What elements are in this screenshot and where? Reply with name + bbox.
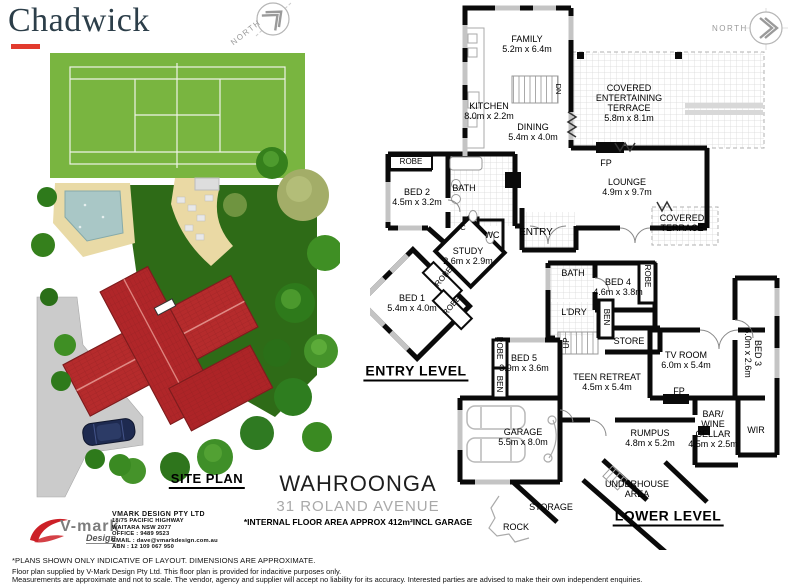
site-plan-title: SITE PLAN (169, 471, 245, 489)
room-label-rock: ROCK (503, 522, 529, 532)
room-label-robe-bed5: ROBE (494, 337, 504, 360)
disclaimer-line-1: *PLANS SHOWN ONLY INDICATIVE OF LAYOUT. … (12, 556, 315, 565)
room-label-storage: STORAGE (529, 502, 573, 512)
company-email: EMAIL : dave@vmarkdesign.com.au (112, 538, 218, 545)
floorplan-sheet: NORTH NORTH (0, 0, 800, 586)
room-label-rumpus: RUMPUS4.8m x 5.2m (625, 428, 675, 448)
room-label-bath: BATH (452, 183, 475, 193)
company-address-1: 18/75 PACIFIC HIGHWAY (112, 518, 218, 525)
room-label-wir: WIR (747, 425, 765, 435)
company-phone: OFFICE : 9489 9523 (112, 531, 218, 538)
title-accent-bar (11, 44, 40, 49)
site-plan-art (25, 45, 340, 510)
room-label-robe-bed2: ROBE (400, 157, 423, 167)
stairs-down (512, 76, 558, 103)
room-label-wc: WC (485, 230, 500, 240)
lower-level-title: LOWER LEVEL (613, 508, 724, 527)
street-address: 31 ROLAND AVENUE (244, 498, 472, 515)
room-label-bar-wine-cellar: BAR/WINE CELLAR4.5m x 2.5m (688, 409, 738, 449)
room-label-laundry: L'DRY (561, 307, 587, 317)
room-label-underhouse-area: UNDERHOUSEAREA (605, 479, 669, 499)
room-label-entry: ENTRY (519, 228, 553, 238)
room-label-study: STUDY2.6m x 2.9m (443, 246, 493, 266)
room-label-bed1: BED 15.4m x 4.0m (387, 293, 437, 313)
room-label-ben-laundry: BEN (601, 309, 611, 325)
stairs-up-label: UP (562, 337, 572, 348)
fireplace-label: FP (600, 158, 612, 168)
room-label-bed2: BED 24.5m x 3.2m (392, 187, 442, 207)
page-title: Chadwick (8, 2, 150, 40)
company-name: VMARK DESIGN PTY LTD (112, 511, 218, 518)
fireplace-label-lower: FP (673, 386, 685, 396)
room-label-bath-lower: BATH (561, 268, 584, 278)
room-label-lounge: LOUNGE4.9m x 9.7m (602, 177, 652, 197)
room-label-family: FAMILY5.2m x 6.4m (502, 34, 552, 54)
disclaimer-line-3: Measurements are approximate and not to … (12, 575, 642, 584)
room-label-kitchen: KITCHEN8.0m x 2.2m (464, 101, 514, 121)
room-label-dining: DINING5.4m x 4.0m (508, 122, 558, 142)
room-label-bed5: BED 53.9m x 3.6m (499, 353, 549, 373)
company-address-2: WAITARA NSW 2077 (112, 525, 218, 532)
suburb: WAHROONGA (244, 471, 472, 497)
room-label-bed3: BED 36.0m x 2.6m (743, 328, 763, 378)
room-label-tv-room: TV ROOM6.0m x 5.4m (661, 350, 711, 370)
kitchen-bench (467, 28, 484, 148)
pool (53, 183, 135, 257)
closet-label-c: C (460, 223, 465, 233)
room-label-covered-terrace: COVEREDTERRACE (660, 213, 705, 233)
address-block: WAHROONGA 31 ROLAND AVENUE *INTERNAL FLO… (244, 471, 472, 527)
room-label-garage: GARAGE5.5m x 8.0m (498, 427, 548, 447)
room-label-teen-retreat: TEEN RETREAT4.5m x 5.4m (573, 372, 641, 392)
room-label-robe-bed4: ROBE (642, 265, 652, 288)
room-label-store: STORE (614, 336, 645, 346)
rock-outline (489, 496, 529, 542)
room-label-ben-bed5: BEN (494, 376, 504, 392)
room-label-covered-entertaining-terrace: COVEREDENTERTAINING TERRACE5.8m x 8.1m (596, 83, 662, 123)
company-details: VMARK DESIGN PTY LTD 18/75 PACIFIC HIGHW… (112, 511, 218, 551)
room-label-bed4: BED 44.6m x 3.8m (593, 277, 643, 297)
stairs-dn-label: DN (553, 84, 563, 95)
company-abn: ABN : 12 109 067 950 (112, 544, 218, 551)
entry-level-title: ENTRY LEVEL (363, 363, 468, 382)
floor-area-note: *INTERNAL FLOOR AREA APPROX 412m²INCL GA… (244, 517, 472, 527)
